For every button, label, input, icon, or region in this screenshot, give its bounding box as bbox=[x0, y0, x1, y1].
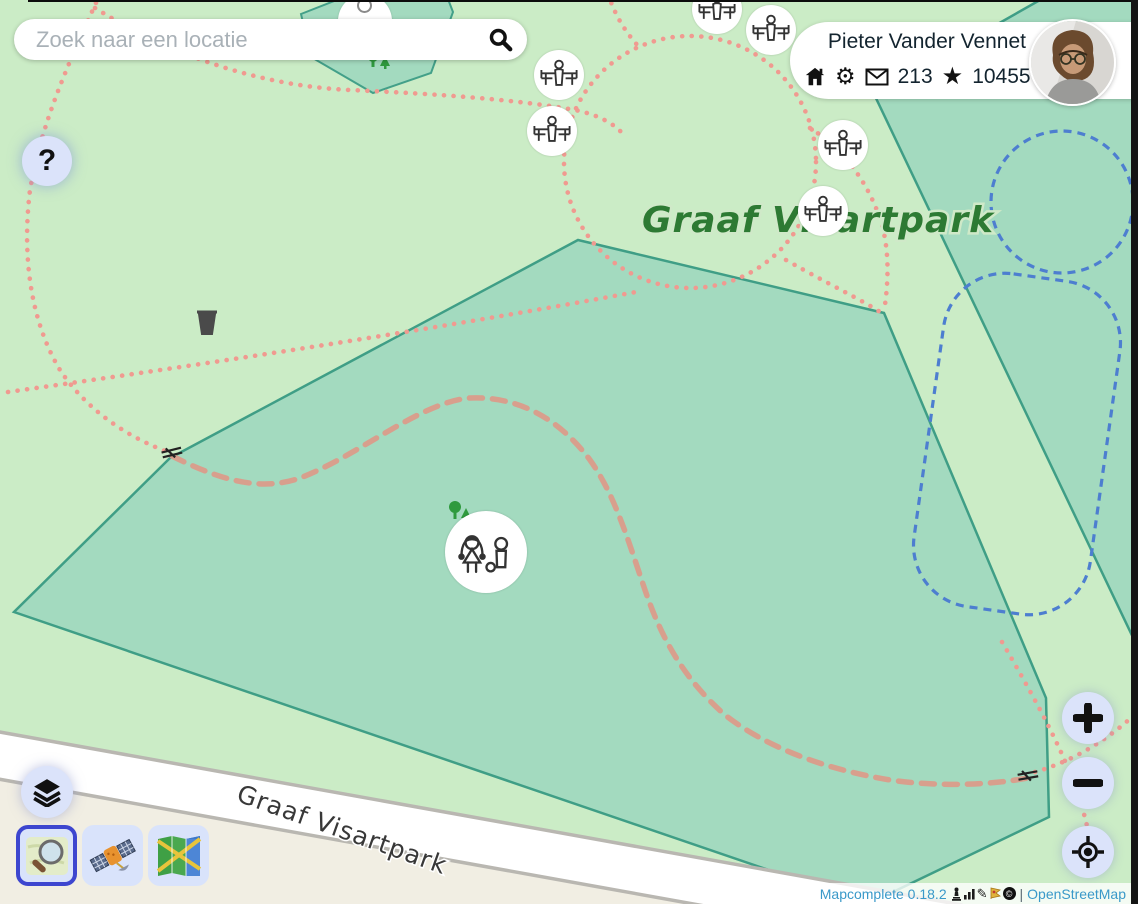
search-icon[interactable] bbox=[481, 20, 521, 60]
statue-icon[interactable] bbox=[951, 887, 962, 901]
picnic-table-marker[interactable] bbox=[818, 120, 868, 170]
picnic-table-marker[interactable] bbox=[527, 106, 577, 156]
picnic-table-icon bbox=[801, 189, 845, 233]
user-stats-row: ⚙ 213 ★ 10455 bbox=[804, 62, 1038, 91]
window-top-line bbox=[28, 0, 1131, 2]
search-input[interactable] bbox=[14, 27, 481, 53]
zoom-out-icon bbox=[1073, 768, 1103, 798]
osm-carto-icon bbox=[24, 833, 70, 879]
background-map-button[interactable] bbox=[148, 825, 209, 886]
stars-count: 10455 bbox=[972, 65, 1030, 89]
messages-count: 213 bbox=[898, 65, 933, 89]
layers-icon bbox=[32, 777, 62, 807]
openstreetmap-link[interactable]: OpenStreetMap bbox=[1027, 886, 1126, 902]
satellite-icon bbox=[89, 833, 137, 879]
picnic-table-marker[interactable] bbox=[534, 50, 584, 100]
pencil-icon[interactable]: ✎ bbox=[977, 886, 988, 902]
community-icon[interactable] bbox=[989, 887, 1002, 900]
layers-button[interactable] bbox=[21, 766, 73, 818]
user-name[interactable]: Pieter Vander Vennet bbox=[828, 30, 1026, 54]
picnic-table-icon bbox=[530, 109, 574, 153]
messages-icon[interactable] bbox=[865, 68, 889, 86]
picnic-table-marker[interactable] bbox=[692, 0, 742, 34]
picnic-table-marker[interactable] bbox=[798, 186, 848, 236]
window-edge-strip bbox=[1131, 0, 1138, 904]
playground-marker[interactable] bbox=[445, 511, 527, 593]
background-osm-carto-button[interactable] bbox=[16, 825, 77, 886]
background-satellite-button[interactable] bbox=[82, 825, 143, 886]
picnic-table-icon bbox=[695, 0, 739, 31]
statistics-icon[interactable] bbox=[963, 887, 976, 900]
background-layer-row bbox=[16, 825, 209, 886]
zoom-in-icon bbox=[1073, 703, 1103, 733]
copyright-icon[interactable]: © bbox=[1003, 887, 1016, 900]
picnic-table-icon bbox=[821, 123, 865, 167]
mapcomplete-app: Graaf Visartpark Graaf Visartpark bbox=[0, 0, 1138, 904]
home-icon[interactable] bbox=[804, 66, 826, 88]
picnic-table-icon bbox=[749, 8, 793, 52]
playground-icon bbox=[451, 517, 521, 587]
picnic-table-marker[interactable] bbox=[746, 5, 796, 55]
geolocate-button[interactable] bbox=[1062, 826, 1114, 878]
help-button[interactable]: ? bbox=[22, 136, 72, 186]
settings-gear-icon[interactable]: ⚙ bbox=[835, 63, 856, 90]
zoom-in-button[interactable] bbox=[1062, 692, 1114, 744]
attribution-separator: | bbox=[1020, 886, 1024, 902]
star-icon[interactable]: ★ bbox=[942, 62, 964, 91]
picnic-table-icon bbox=[537, 53, 581, 97]
attribution-bar: Mapcomplete 0.18.2 ✎ © | OpenStreetMap bbox=[812, 883, 1131, 904]
geolocate-icon bbox=[1071, 835, 1105, 869]
avatar[interactable] bbox=[1029, 19, 1116, 106]
attribution-icons: ✎ © bbox=[951, 886, 1016, 902]
map-icon bbox=[156, 835, 202, 877]
search-bar bbox=[14, 19, 527, 60]
mapcomplete-version-link[interactable]: Mapcomplete 0.18.2 bbox=[820, 886, 947, 902]
zoom-out-button[interactable] bbox=[1062, 757, 1114, 809]
